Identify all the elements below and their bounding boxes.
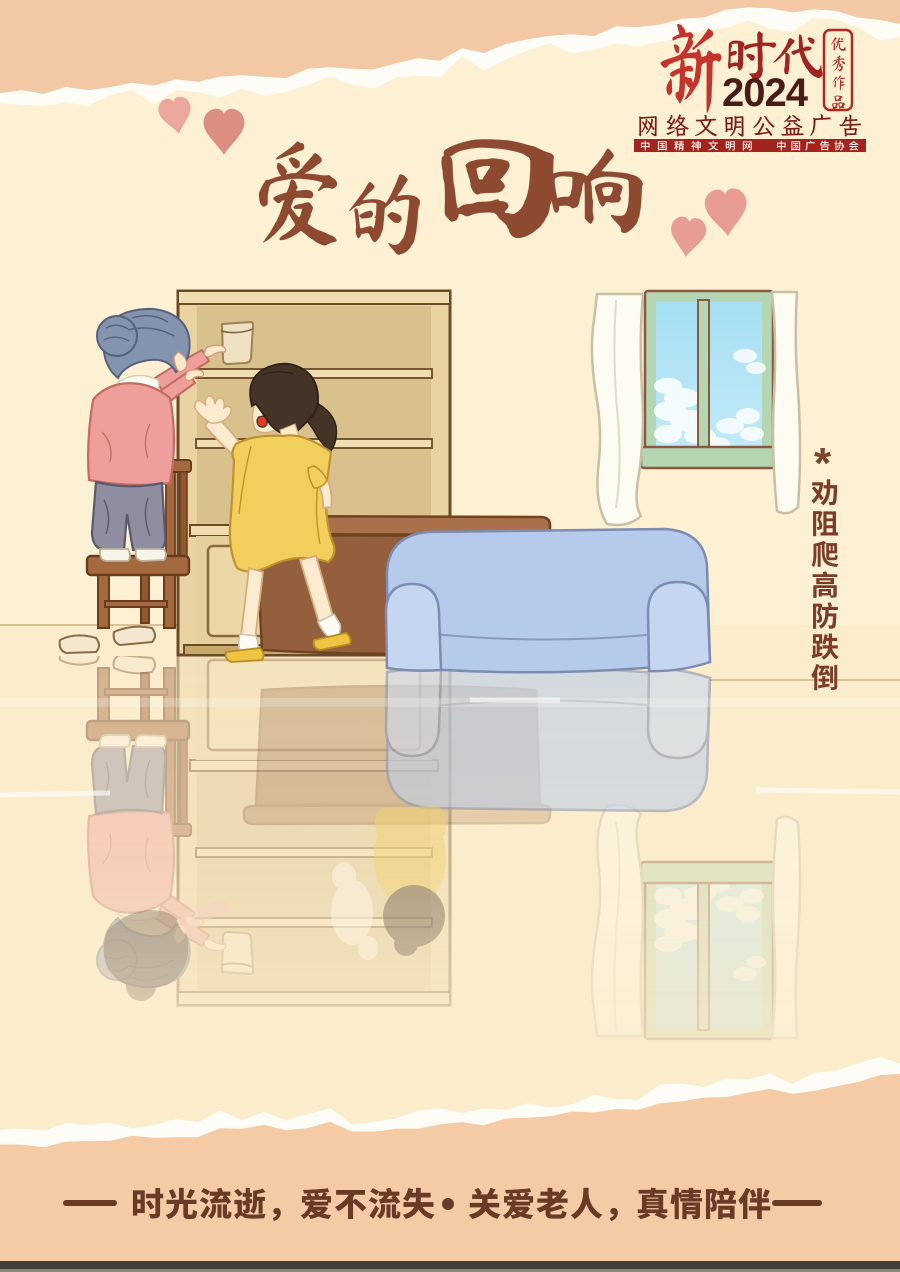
- svg-text:2024: 2024: [722, 71, 809, 115]
